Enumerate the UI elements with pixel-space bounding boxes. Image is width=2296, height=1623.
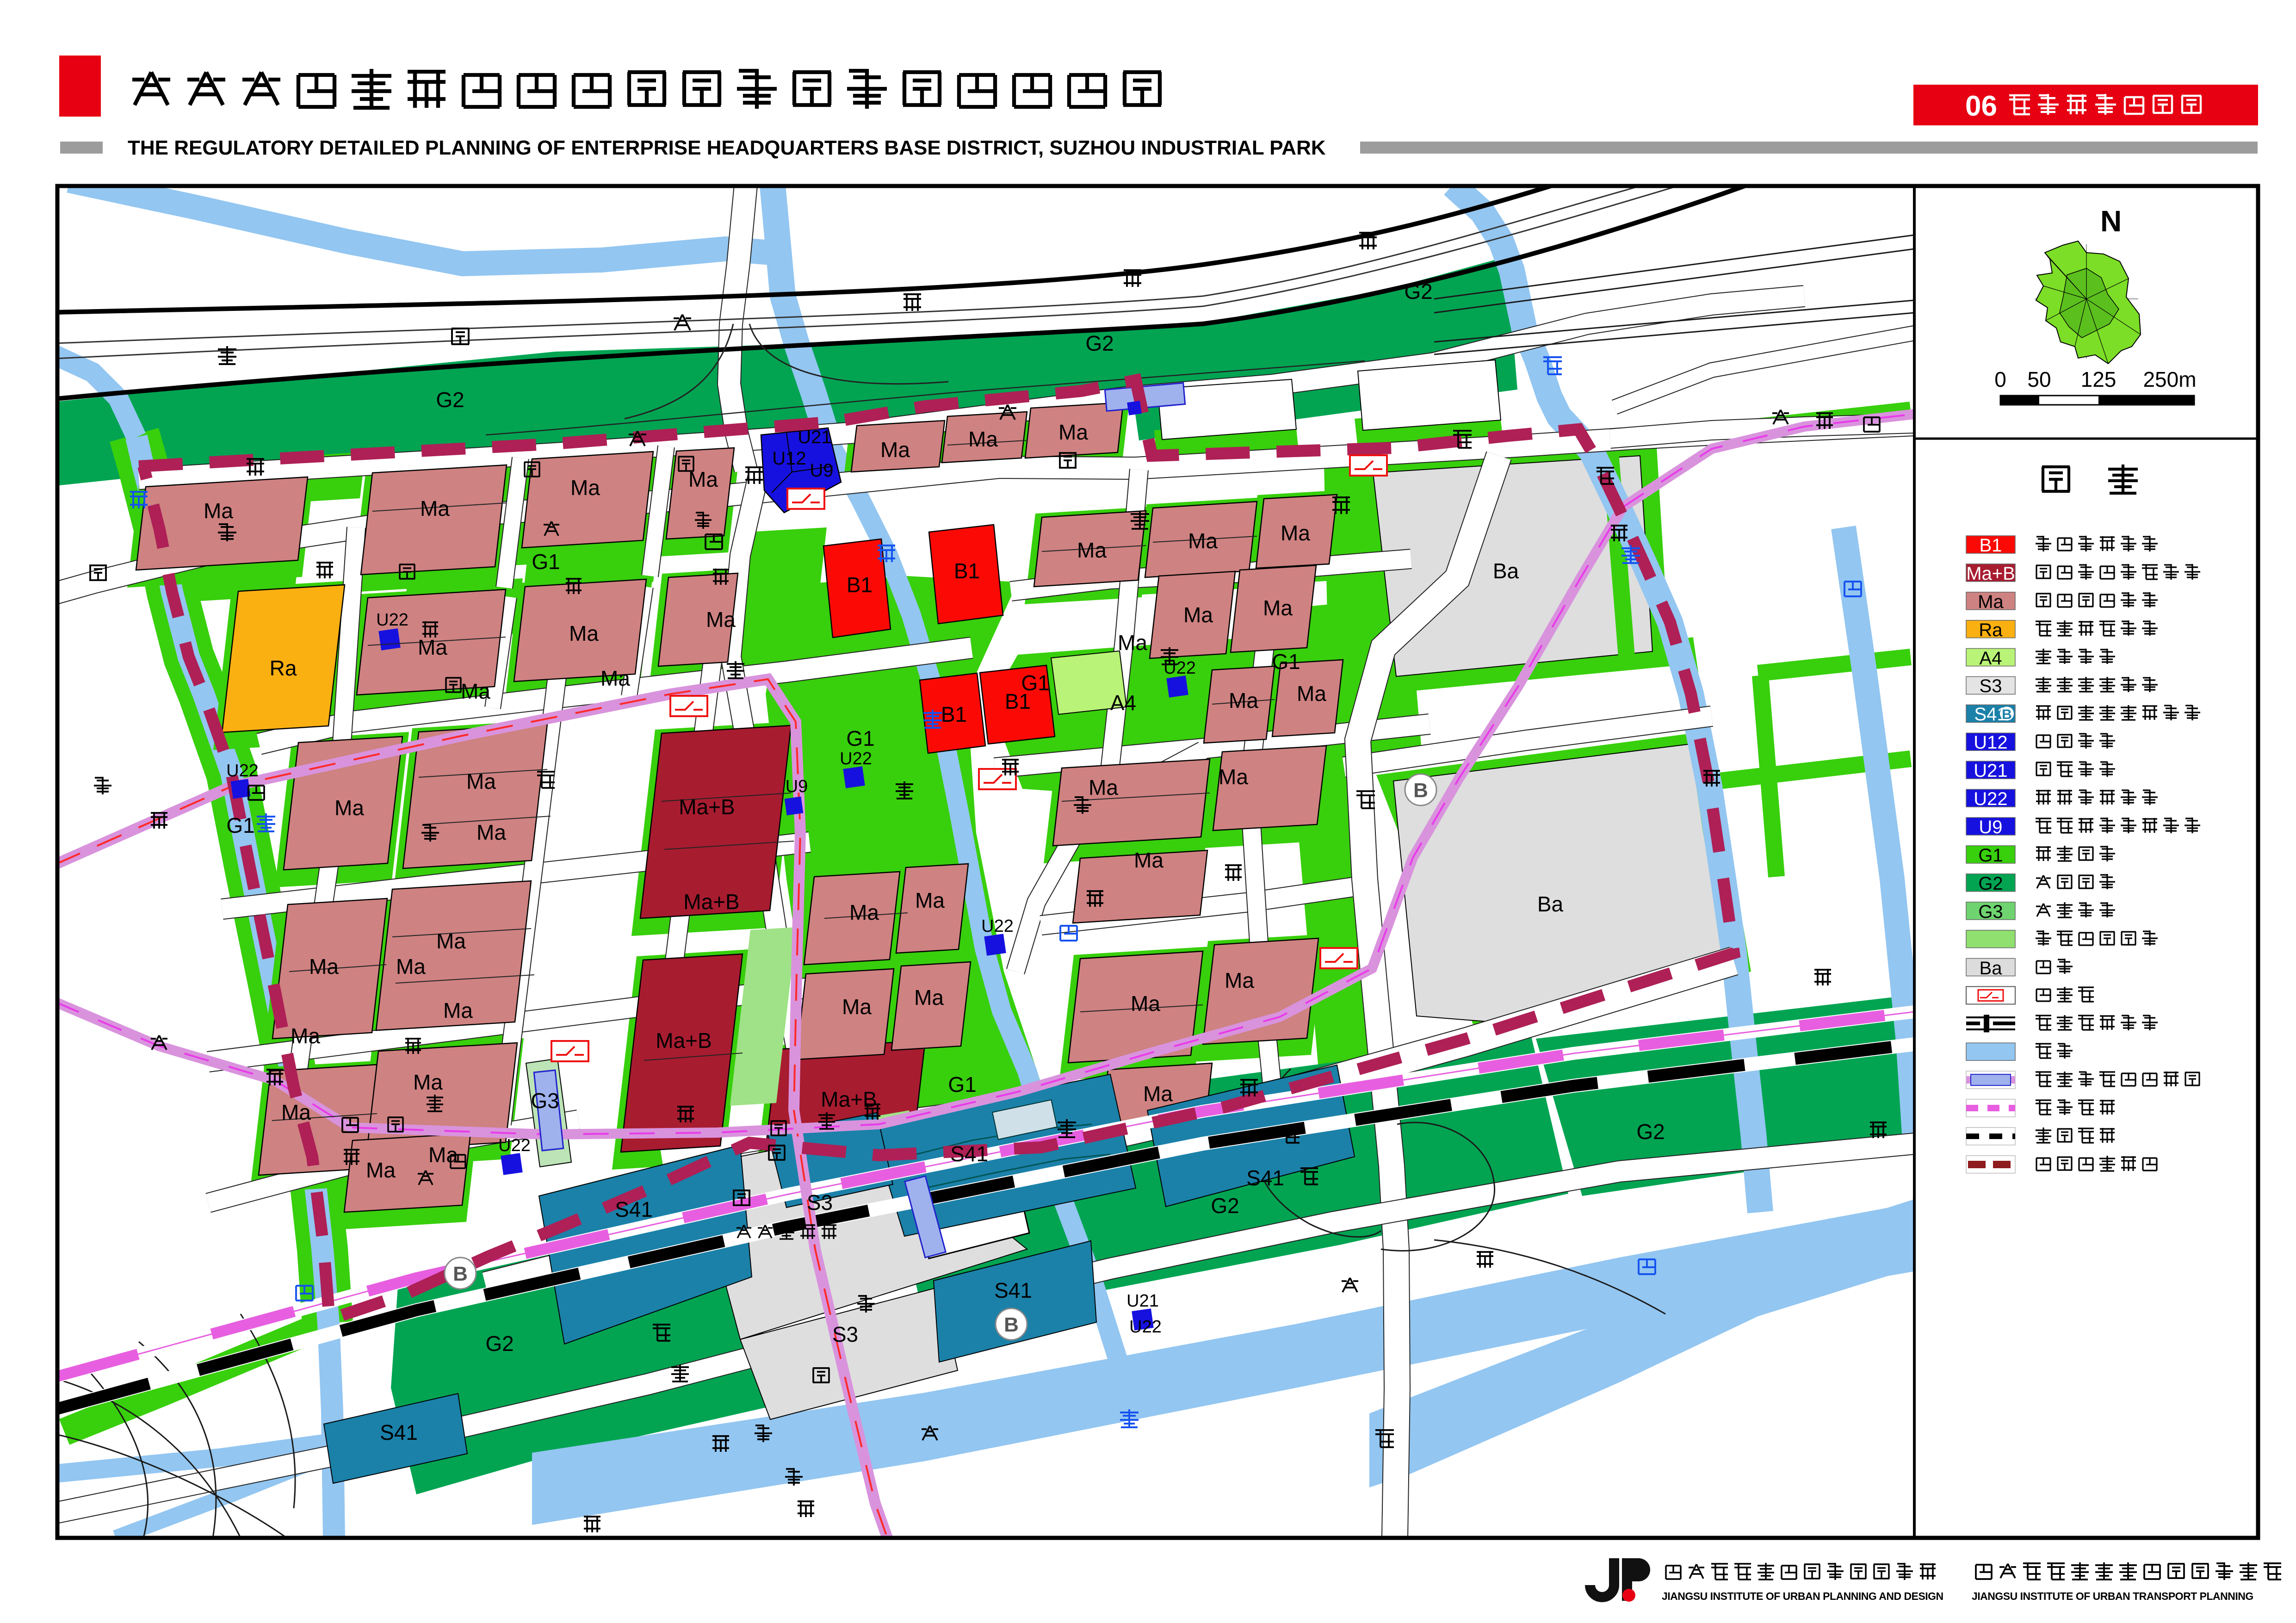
svg-text:Ma: Ma — [436, 929, 466, 953]
svg-text:B: B — [453, 1263, 468, 1285]
svg-text:50: 50 — [2027, 367, 2051, 391]
svg-text:Ma: Ma — [1229, 688, 1258, 712]
svg-text:G2: G2 — [1978, 873, 2003, 894]
svg-text:B: B — [1413, 779, 1428, 802]
svg-text:U22: U22 — [1129, 1317, 1162, 1337]
svg-text:Ma: Ma — [461, 679, 490, 703]
svg-text:G1: G1 — [1021, 671, 1049, 695]
svg-text:U21: U21 — [1126, 1291, 1159, 1311]
svg-text:Ma: Ma — [1281, 521, 1310, 545]
svg-text:JIANGSU INSTITUTE OF URBAN PLA: JIANGSU INSTITUTE OF URBAN PLANNING AND … — [1662, 1590, 1943, 1602]
svg-text:Ma: Ma — [396, 954, 426, 979]
svg-text:Ma: Ma — [1183, 603, 1213, 627]
svg-text:JIANGSU INSTITUTE OF URBAN TRA: JIANGSU INSTITUTE OF URBAN TRANSPORT PLA… — [1972, 1590, 2253, 1602]
svg-text:Ma: Ma — [569, 621, 599, 645]
svg-text:S41: S41 — [950, 1142, 988, 1166]
svg-text:G3: G3 — [1978, 902, 2003, 922]
svg-text:A4: A4 — [1110, 691, 1136, 715]
svg-text:U22: U22 — [498, 1136, 531, 1155]
svg-text:250m: 250m — [2143, 367, 2196, 391]
svg-text:Ma: Ma — [477, 820, 506, 844]
svg-text:Ba: Ba — [1980, 958, 2003, 979]
svg-text:Ma: Ma — [600, 666, 630, 690]
svg-text:Ma: Ma — [309, 954, 339, 979]
svg-text:Ma: Ma — [570, 476, 600, 500]
svg-text:G1: G1 — [1978, 845, 2003, 866]
svg-text:U22: U22 — [226, 761, 259, 781]
svg-text:G1: G1 — [226, 813, 254, 837]
svg-text:Ma: Ma — [1263, 596, 1293, 620]
svg-text:G2: G2 — [485, 1332, 514, 1356]
svg-text:Ma: Ma — [366, 1158, 396, 1182]
svg-text:S41: S41 — [994, 1278, 1032, 1302]
svg-text:G2: G2 — [1404, 279, 1432, 304]
svg-text:U22: U22 — [376, 610, 408, 630]
svg-text:Ba: Ba — [1493, 559, 1519, 583]
svg-text:Ma+B: Ma+B — [683, 890, 739, 914]
svg-text:Ma: Ma — [1077, 538, 1107, 562]
svg-text:Ma+B: Ma+B — [679, 795, 735, 819]
svg-text:Ma: Ma — [842, 995, 872, 1019]
svg-text:U12: U12 — [772, 448, 806, 469]
svg-text:A4: A4 — [1980, 648, 2002, 669]
svg-text:Ma: Ma — [1297, 681, 1326, 706]
svg-text:U9: U9 — [786, 777, 808, 796]
svg-text:Ma: Ma — [1089, 775, 1118, 799]
svg-text:Ma: Ma — [1143, 1082, 1173, 1106]
svg-text:Ma: Ma — [466, 769, 496, 793]
svg-text:S41: S41 — [615, 1197, 653, 1221]
svg-text:Ma: Ma — [1131, 991, 1160, 1016]
svg-text:Ma: Ma — [1978, 592, 2004, 612]
svg-text:Ma: Ma — [291, 1024, 320, 1048]
svg-text:U12: U12 — [1974, 732, 2007, 753]
svg-text:Ma: Ma — [968, 427, 998, 451]
svg-text:Ma: Ma — [1225, 968, 1254, 992]
svg-text:Ma: Ma — [1118, 631, 1147, 655]
svg-text:U21: U21 — [1974, 761, 2007, 781]
svg-text:G2: G2 — [1211, 1194, 1239, 1218]
svg-text:Ma: Ma — [418, 635, 447, 659]
svg-text:125: 125 — [2081, 367, 2117, 391]
svg-text:THE REGULATORY DETAILED PLANNI: THE REGULATORY DETAILED PLANNING OF ENTE… — [128, 136, 1326, 159]
svg-text:Ma: Ma — [1219, 765, 1248, 789]
svg-text:Ma: Ma — [915, 888, 945, 912]
svg-text:B1: B1 — [954, 559, 980, 583]
svg-text:Ma: Ma — [1058, 420, 1088, 444]
svg-text:Ma: Ma — [849, 900, 879, 924]
svg-text:Ma+B: Ma+B — [821, 1087, 877, 1111]
svg-text:U22: U22 — [1974, 789, 2007, 809]
svg-text:B1: B1 — [1980, 535, 2002, 556]
svg-text:Ra: Ra — [1979, 620, 2003, 640]
svg-text:Ma: Ma — [1188, 529, 1218, 553]
svg-text:G2: G2 — [1085, 331, 1114, 355]
svg-text:B: B — [2002, 707, 2012, 722]
svg-text:Ma: Ma — [914, 985, 944, 1010]
svg-text:G1: G1 — [532, 550, 560, 574]
svg-text:Ma: Ma — [420, 496, 450, 520]
svg-text:Ma: Ma — [413, 1070, 443, 1094]
svg-text:S3: S3 — [832, 1322, 858, 1346]
svg-text:Ma+B: Ma+B — [656, 1028, 712, 1053]
svg-text:G1: G1 — [948, 1072, 976, 1096]
svg-text:Ma: Ma — [880, 438, 910, 462]
svg-text:B1: B1 — [941, 702, 967, 726]
svg-text:Ma: Ma — [706, 607, 736, 632]
svg-text:U9: U9 — [810, 460, 833, 481]
svg-text:G1: G1 — [846, 726, 874, 750]
svg-text:Ma: Ma — [1134, 848, 1163, 872]
svg-text:U9: U9 — [1979, 817, 2002, 837]
svg-text:U22: U22 — [981, 917, 1014, 936]
svg-text:B: B — [1004, 1313, 1019, 1336]
svg-text:N: N — [2100, 204, 2122, 238]
svg-text:G1: G1 — [1272, 650, 1300, 674]
svg-text:S3: S3 — [807, 1190, 833, 1214]
svg-text:G2: G2 — [436, 388, 464, 412]
svg-text:Ma: Ma — [443, 998, 473, 1022]
svg-text:Ma+B: Ma+B — [1966, 564, 2015, 584]
svg-text:Ra: Ra — [270, 656, 297, 680]
svg-text:Ma: Ma — [281, 1100, 311, 1124]
svg-text:06: 06 — [1965, 90, 1997, 122]
svg-text:Ba: Ba — [1537, 892, 1564, 916]
svg-text:U22: U22 — [840, 749, 872, 768]
svg-text:Ma: Ma — [334, 796, 364, 820]
svg-text:G2: G2 — [1636, 1120, 1665, 1144]
svg-text:G3: G3 — [531, 1089, 559, 1113]
svg-text:S41: S41 — [380, 1420, 418, 1444]
svg-text:U21: U21 — [798, 427, 831, 447]
svg-text:B1: B1 — [847, 573, 873, 597]
svg-text:S41: S41 — [1246, 1166, 1284, 1190]
svg-text:S3: S3 — [1980, 676, 2002, 696]
svg-text:0: 0 — [1994, 367, 2006, 391]
svg-text:Ma: Ma — [204, 499, 233, 523]
